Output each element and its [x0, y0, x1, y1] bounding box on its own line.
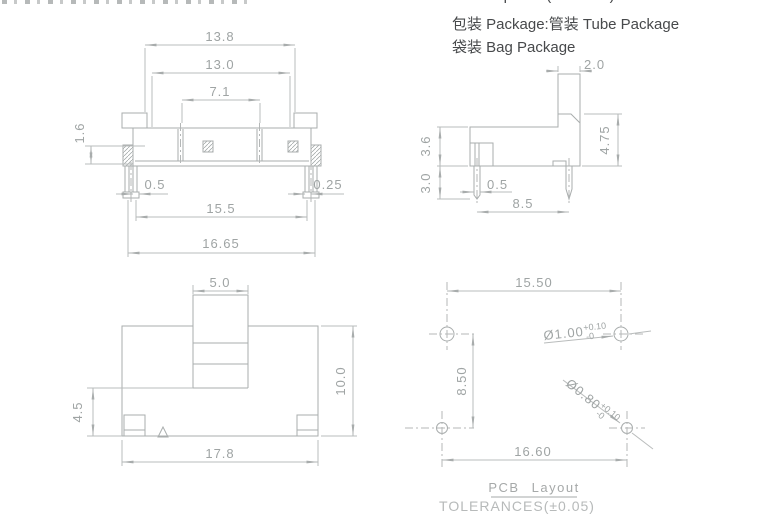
technical-drawing: 13.8 13.0 7.1 1.6 0.5 0.25 15.5: [0, 0, 780, 531]
pcb-layout: 15.50 8.50 16.60 Ø1.00+0.10-0 Ø0.80+0.10…: [405, 275, 653, 514]
dim-label-15-5: 15.5: [206, 201, 235, 216]
dim-label-0-5-front: 0.5: [144, 177, 165, 192]
front-view: 13.8 13.0 7.1 1.6 0.5 0.25 15.5: [72, 29, 344, 257]
dim-label-13-0: 13.0: [205, 57, 234, 72]
contact-rivet-left: [203, 141, 213, 152]
pcb-caption: PCB Layout TOLERANCES(±0.05): [439, 480, 595, 514]
side-view: 2.0 4.75 3.6 3.0 0.5 8.5: [418, 57, 622, 212]
mount-bracket-right: [311, 145, 321, 166]
dim-label-3-0: 3.0: [418, 172, 433, 193]
dim-label-17-8: 17.8: [205, 446, 234, 461]
dim-label-0-25: 0.25: [313, 177, 342, 192]
dim-label-16-65: 16.65: [202, 236, 240, 251]
tolerance-note: TOLERANCES(±0.05): [439, 498, 595, 514]
dim-label-2-0: 2.0: [584, 57, 605, 72]
drawing-sheet: Thermoplastic(UL94V-0) 包装 Package:管装 Tub…: [0, 0, 780, 531]
top-view-dimensions: 5.0 10.0 4.5 17.8: [70, 275, 357, 466]
top-view: 5.0 10.0 4.5 17.8: [70, 275, 357, 466]
dim-label-4-5: 4.5: [70, 401, 85, 422]
dim-label-3-6: 3.6: [418, 135, 433, 156]
dim-label-8-50: 8.50: [454, 366, 469, 395]
dim-label-4-75: 4.75: [597, 125, 612, 154]
dim-label-8-5: 8.5: [512, 196, 533, 211]
pcb-layout-title: PCB Layout: [488, 480, 579, 495]
dim-label-1-6: 1.6: [72, 122, 87, 143]
pcb-holes: [405, 282, 645, 468]
contact-rivet-right: [288, 141, 298, 152]
slider-knob: [193, 295, 248, 388]
dim-label-16-60: 16.60: [514, 444, 552, 459]
dim-label-13-8: 13.8: [205, 29, 234, 44]
bracket-section: [470, 143, 493, 166]
dim-label-0-5-side: 0.5: [487, 177, 508, 192]
top-view-outline: [122, 295, 318, 437]
dim-label-15-50: 15.50: [515, 275, 553, 290]
side-view-dimensions: 2.0 4.75 3.6 3.0 0.5 8.5: [418, 57, 622, 212]
dim-label-7-1: 7.1: [209, 84, 230, 99]
dim-label-5-0: 5.0: [209, 275, 230, 290]
dim-label-10-0: 10.0: [333, 366, 348, 395]
hole-label-bottom: Ø0.80+0.10-0: [561, 375, 622, 430]
